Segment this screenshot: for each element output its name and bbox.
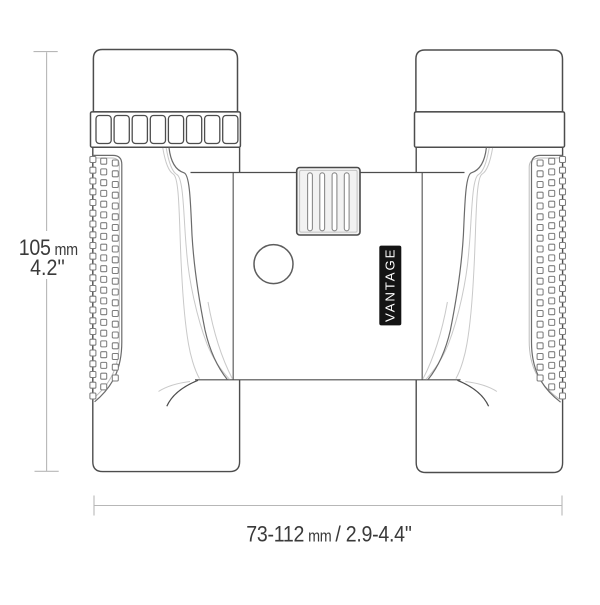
svg-text:4.2'': 4.2'' xyxy=(30,256,65,281)
svg-text:VANTAGE: VANTAGE xyxy=(383,248,398,322)
